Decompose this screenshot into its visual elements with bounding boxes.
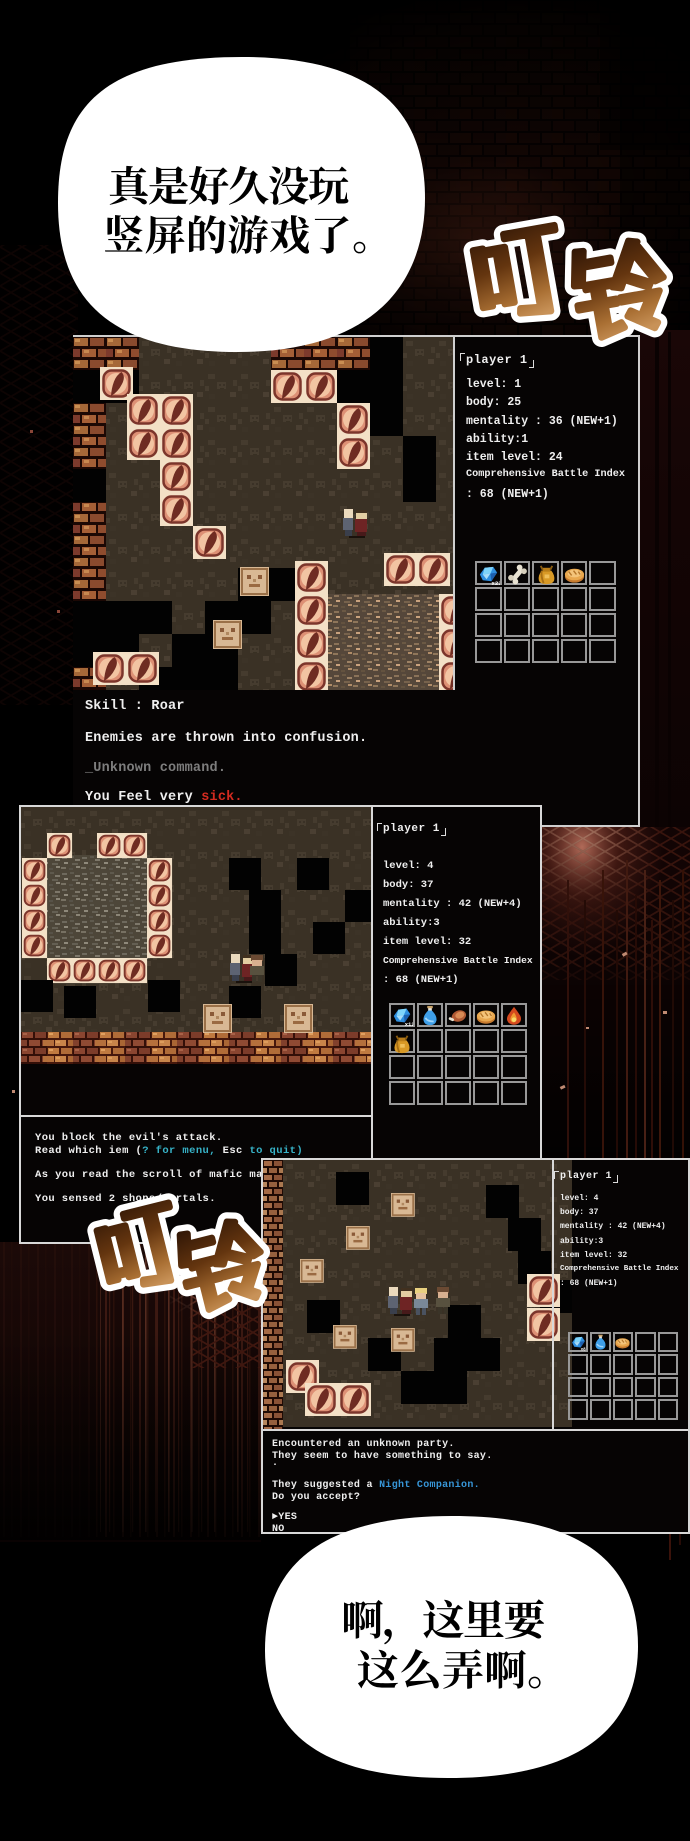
svg-text:x8: x8 xyxy=(581,1347,587,1351)
svg-text:x12: x12 xyxy=(405,1021,413,1027)
svg-text:x23: x23 xyxy=(491,580,500,586)
